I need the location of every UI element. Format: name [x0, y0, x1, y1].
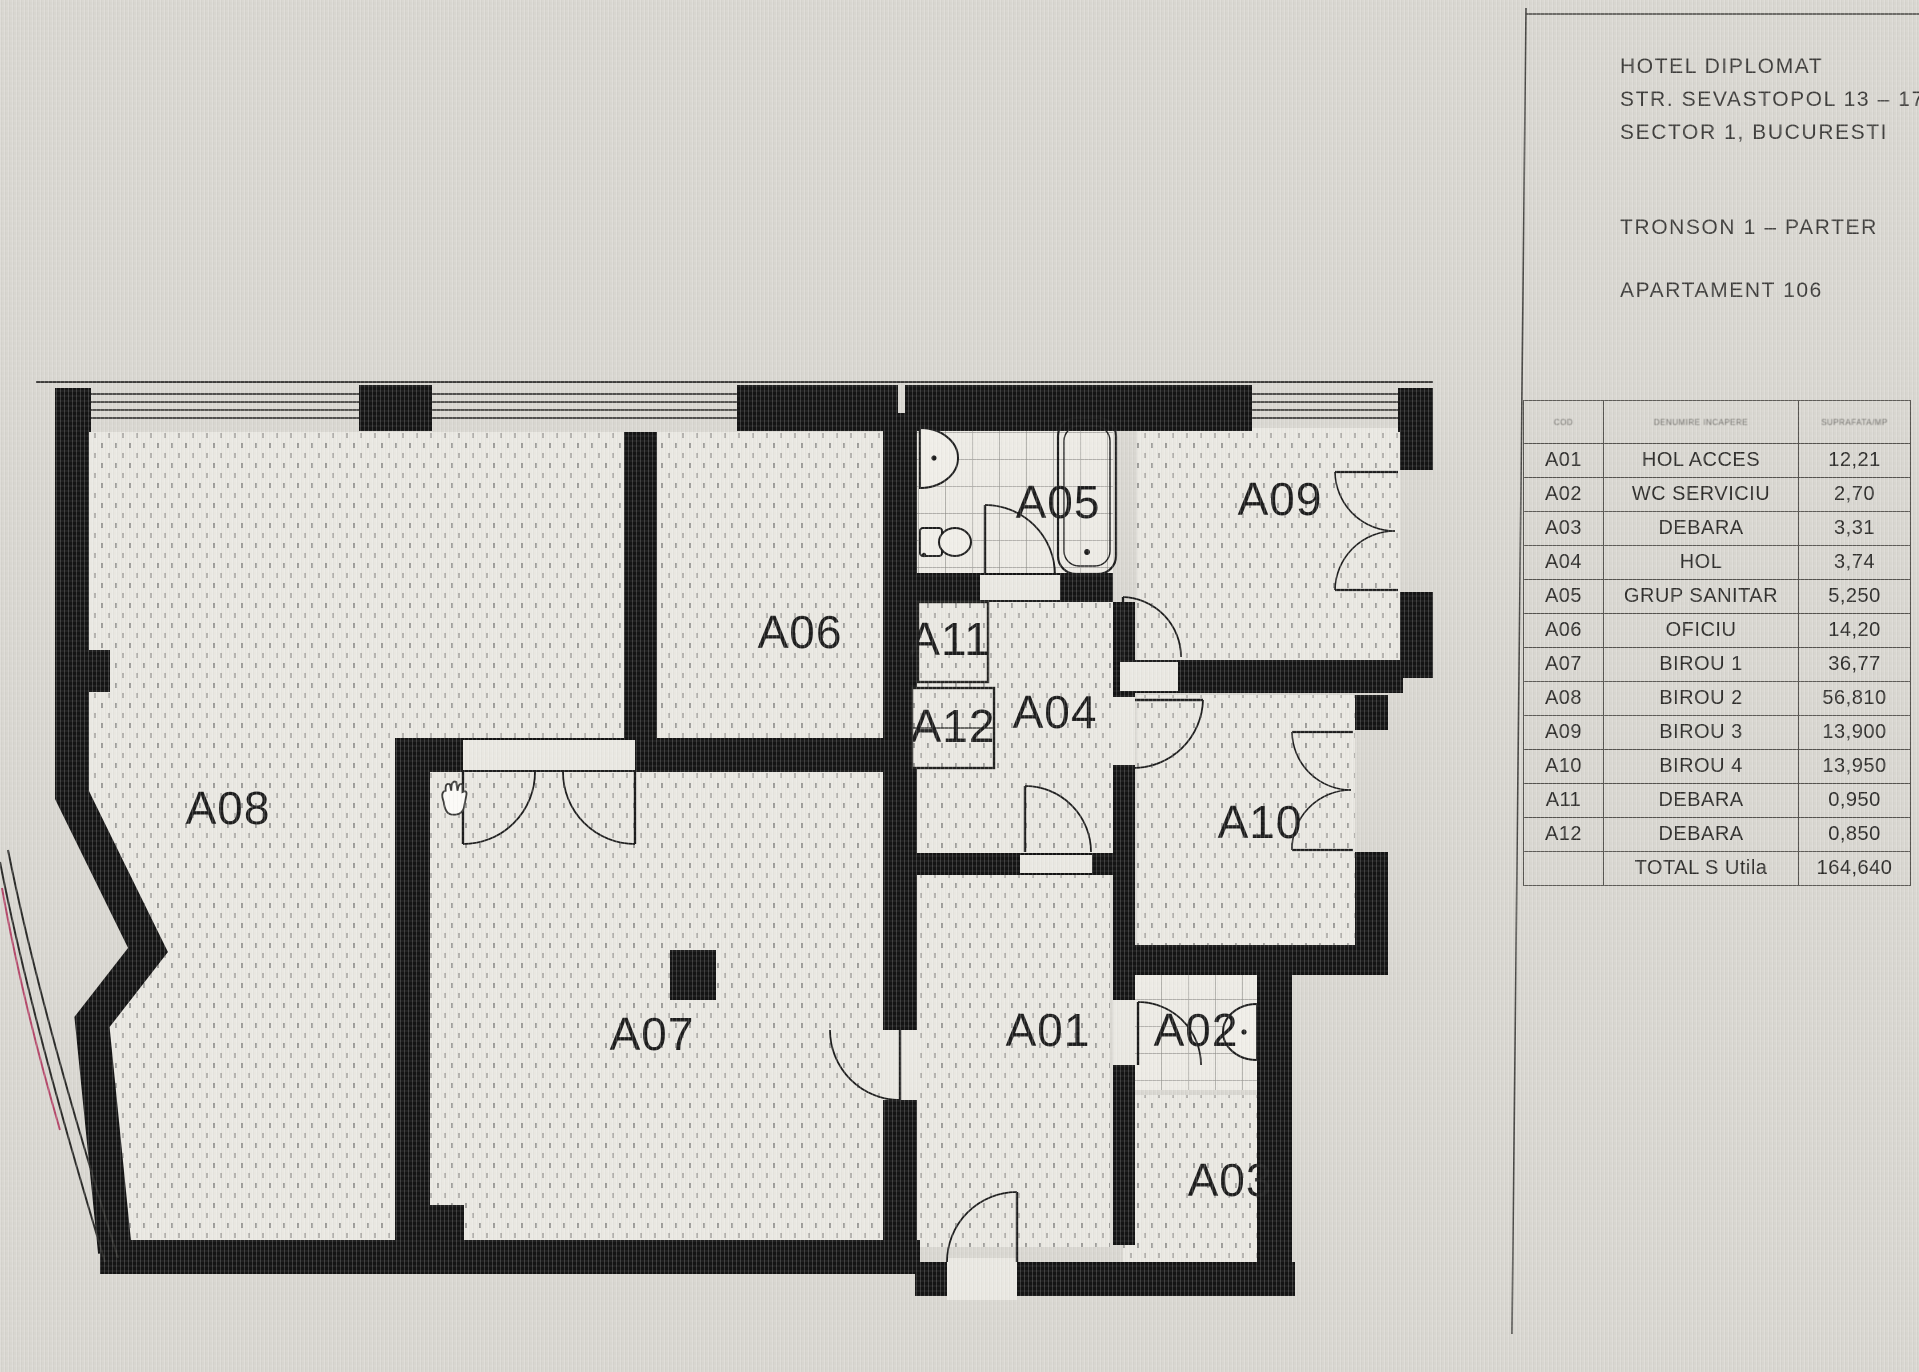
- title-block: HOTEL DIPLOMAT STR. SEVASTOPOL 13 – 17 S…: [1620, 50, 1919, 307]
- schedule-header-row: COD DENUMIRE INCAPERE SUPRAFATA/MP: [1524, 401, 1911, 444]
- room-label-a11: A11: [909, 613, 990, 665]
- floor-birou1-a07: [430, 772, 883, 1242]
- room-label-a06: A06: [758, 606, 843, 658]
- room-label-a10: A10: [1218, 796, 1303, 848]
- schedule-row: A01HOL ACCES12,21: [1524, 444, 1911, 478]
- toilet-icon: [920, 528, 971, 557]
- screenshot-stage: A08 A06 A05 A09 A11 A12 A04 A10 A07 A01 …: [0, 0, 1919, 1372]
- schedule-row: A12DEBARA0,850: [1524, 818, 1911, 852]
- schedule-total-row: TOTAL S Utila 164,640: [1524, 852, 1911, 886]
- street-address: STR. SEVASTOPOL 13 – 17: [1620, 83, 1919, 116]
- schedule-row: A08BIROU 256,810: [1524, 682, 1911, 716]
- room-label-a02: A02: [1154, 1004, 1239, 1056]
- schedule-row: A07BIROU 136,77: [1524, 648, 1911, 682]
- schedule-row: A03DEBARA3,31: [1524, 512, 1911, 546]
- schedule-row: A02WC SERVICIU2,70: [1524, 478, 1911, 512]
- hand-cursor-icon: [442, 782, 466, 815]
- red-reference-curve: [2, 888, 60, 1130]
- room-label-a09: A09: [1238, 473, 1323, 525]
- room-label-a05: A05: [1016, 476, 1101, 528]
- room-floors: [88, 428, 1400, 1265]
- project-name: HOTEL DIPLOMAT: [1620, 50, 1919, 83]
- section-line: TRONSON 1 – PARTER: [1620, 211, 1919, 244]
- room-label-a04: A04: [1013, 686, 1098, 738]
- schedule-row: A04HOL3,74: [1524, 546, 1911, 580]
- total-empty-cell: [1524, 852, 1604, 886]
- apartment-line: APARTAMENT 106: [1620, 274, 1919, 307]
- total-label: TOTAL S Utila: [1604, 852, 1799, 886]
- col-header-area: SUPRAFATA/MP: [1799, 401, 1911, 444]
- room-label-a07: A07: [610, 1008, 695, 1060]
- room-label-a03: A03: [1188, 1154, 1273, 1206]
- city-line: SECTOR 1, BUCURESTI: [1620, 116, 1919, 149]
- schedule-row: A11DEBARA0,950: [1524, 784, 1911, 818]
- room-schedule-table: COD DENUMIRE INCAPERE SUPRAFATA/MP A01HO…: [1523, 400, 1911, 886]
- col-header-code: COD: [1524, 401, 1604, 444]
- floor-birou3-a09: [1137, 428, 1400, 675]
- room-label-a08: A08: [186, 782, 271, 834]
- schedule-row: A05GRUP SANITAR5,250: [1524, 580, 1911, 614]
- floor-oficiu-a06: [657, 432, 883, 738]
- room-label-a12: A12: [911, 700, 996, 752]
- schedule-row: A09BIROU 313,900: [1524, 716, 1911, 750]
- col-header-name: DENUMIRE INCAPERE: [1604, 401, 1799, 444]
- schedule-row: A06OFICIU14,20: [1524, 614, 1911, 648]
- room-label-a01: A01: [1006, 1004, 1091, 1056]
- schedule-row: A10BIROU 413,950: [1524, 750, 1911, 784]
- total-value: 164,640: [1799, 852, 1911, 886]
